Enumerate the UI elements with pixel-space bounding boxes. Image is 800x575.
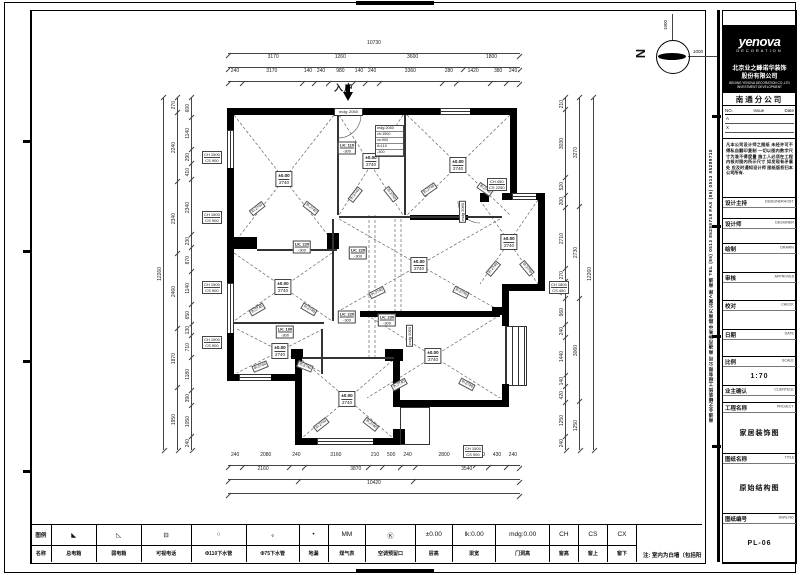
entry-arrow-head: [343, 92, 353, 101]
legend-symbol: •: [300, 525, 328, 546]
legend-symbol: Ⓚ: [366, 525, 414, 546]
field-value: [723, 229, 796, 243]
beam-drop: -300: [351, 254, 365, 259]
legend-note: 注: 室内为白墙（包括阳台）建筑面积:120m²: [637, 525, 702, 562]
beam-drop: -300: [295, 248, 309, 253]
window: [440, 108, 472, 115]
titleblock-field: 审核 APPROVED: [723, 273, 796, 302]
dim-segment: 1260: [318, 54, 362, 68]
dim-segment: 10420: [228, 480, 520, 494]
dim-row-overall: 10420: [228, 480, 520, 494]
dim-segment: 240: [506, 68, 520, 82]
dim-segment: 12260: [150, 98, 164, 450]
legend-name: Φ75下水管: [247, 546, 299, 562]
field-value: 原始结构图: [723, 464, 796, 514]
dim-col-inner: 2103030520200271027046096024014401404201…: [552, 98, 566, 450]
field-label-en: DWG.NO: [779, 515, 794, 519]
wall: [227, 333, 234, 381]
dim-segment: 3870: [298, 466, 413, 480]
door-height-tag: mdg 2060: [406, 325, 413, 347]
room-level-label: ±0.00 2740: [271, 343, 288, 359]
partition: [332, 219, 334, 321]
dim-row-mid: 216038703540: [228, 466, 520, 480]
dim-segment: 1180: [178, 358, 192, 391]
titleblock-field: 设计主持 DESIGNERHOST: [723, 198, 796, 219]
room-ceiling-height: 2740: [341, 400, 352, 406]
room-level-label: ±0.00 2740: [500, 234, 517, 250]
window-sill: CS 900: [204, 343, 220, 348]
interior-wall: [227, 237, 257, 249]
field-value: [723, 254, 796, 272]
dim-col-overall: 12260: [580, 98, 594, 450]
dim-segment: 290: [178, 150, 192, 164]
dim-segment: 230: [178, 235, 192, 248]
dim-segment: 3270: [566, 98, 580, 207]
window: [239, 374, 273, 381]
dim-segment: 2340: [178, 180, 192, 235]
dim-segment: 420: [552, 387, 566, 403]
legend-bar: 图例 名称 ◣ 总电箱 ◺ 弱电箱 ⊟ 可视电话 ○ Φ110下水管 ∘ Φ75…: [31, 524, 702, 562]
legend-symbol: mdg:0.00: [496, 525, 548, 546]
beam-drop: -300: [380, 321, 394, 326]
beam-width-tag: LK: 220 -300: [293, 241, 311, 254]
field-label-en: CHECK: [782, 302, 794, 306]
dim-col-mid: 27022402340246018701950: [164, 98, 178, 450]
dim-segment: 1250: [566, 402, 580, 450]
rev-no-label: NO.: [725, 107, 733, 114]
legend-item: ⊟ 可视电话: [142, 525, 192, 562]
field-label-cn: 图纸名称: [725, 455, 747, 463]
revision-row: X: [725, 124, 794, 133]
window: [317, 438, 375, 445]
wall: [470, 108, 517, 115]
field-label-cn: 校对: [725, 302, 736, 310]
wall: [502, 291, 509, 326]
room-ceiling-height: 2740: [277, 288, 288, 294]
room-level-label: ±0.00 2740: [274, 279, 291, 295]
revision-header: NO. Issue Date: [725, 107, 794, 115]
legend-name: 窗高: [550, 546, 578, 562]
room-ceiling-height: 2740: [427, 357, 438, 363]
dim-segment: 430: [488, 452, 505, 466]
dim-segment: 1420: [456, 68, 490, 82]
beam-drop: -300: [340, 318, 354, 323]
beam-drop: -300: [340, 149, 354, 154]
wall: [510, 115, 517, 200]
field-label-cn: 工程名称: [725, 404, 747, 412]
legend-name: 层高: [416, 546, 452, 562]
dim-segment: 520: [552, 178, 566, 196]
legend-name: 梁宽: [453, 546, 496, 562]
field-label-cn: 设计主持: [725, 199, 747, 207]
field-label-en: DESIGNER: [775, 220, 794, 224]
floor-plan: 入户 mdg: 2060 ±0.00 2740 ±0.00 2740 ±0.00…: [197, 93, 597, 465]
wall: [536, 193, 545, 200]
dim-segment: 240: [289, 452, 303, 466]
dim-row-overall: 10730: [228, 40, 520, 54]
titleblock-field: 日期 DATE: [723, 330, 796, 357]
revision-table: NO. Issue Date AX: [723, 106, 796, 139]
dim-segment: 3360: [379, 68, 442, 82]
rev-issue-label: Issue: [753, 107, 764, 114]
dim-segment: 1250: [552, 403, 566, 437]
legend-item: MM 煤气表: [329, 525, 367, 562]
room-level-label: ±0.00 2740: [275, 171, 292, 187]
window-sill: CS 900: [204, 158, 220, 163]
company-logo: yenova DECORATION: [723, 26, 796, 64]
dim-segment: 2340: [164, 182, 178, 254]
dim-segment: 1870: [164, 329, 178, 389]
door-height-tag: mdg 2060: [459, 201, 466, 223]
window-tag: CH 1500 CS 900: [202, 336, 222, 349]
dims-top: 10730 3170126036001800 24031701402409801…: [228, 40, 520, 82]
dim-segment: 410: [178, 164, 192, 180]
dim-segment: 140: [302, 68, 314, 82]
partition: [337, 115, 339, 215]
room-level-label: ±0.00 2740: [338, 391, 355, 407]
dim-segment: 240: [552, 325, 566, 338]
legend-header: 图例 名称: [31, 525, 52, 562]
dim-segment: 2080: [242, 452, 289, 466]
branch-name: 南通分公司: [723, 91, 796, 107]
wall: [395, 400, 509, 407]
legend-name: 可视电话: [142, 546, 191, 562]
legend-item: ◺ 弱电箱: [97, 525, 142, 562]
legend-symbol: CS: [579, 525, 607, 546]
drawing-sheet: 入户 mdg: 2060 ±0.00 2740 ±0.00 2740 ±0.00…: [0, 0, 800, 575]
dim-segment: 1440: [552, 338, 566, 376]
column: [492, 307, 502, 315]
dim-segment: 2240: [164, 113, 178, 182]
beam-width-tag: LK: 220 -300: [338, 311, 356, 324]
legend-name: 空调预留口: [366, 546, 414, 562]
dim-segment: 650: [178, 305, 192, 326]
dim-segment: 240: [228, 68, 242, 82]
print-mark-top: [356, 1, 434, 5]
legend-name: 弱电箱: [97, 546, 141, 562]
legend-name: 总电箱: [52, 546, 96, 562]
wall: [361, 108, 440, 115]
field-label-en: PROJECT: [777, 404, 794, 408]
dims-right: 2103030520200271027046096024014401404201…: [552, 98, 594, 450]
legend-item: lk:0.00 梁宽: [453, 525, 497, 562]
legend-name: Φ110下水管: [192, 546, 246, 562]
company-name-en2: INVESTMENT DEVELOPMENT: [727, 85, 793, 89]
room-ceiling-height: 2740: [503, 243, 514, 249]
door-height-value: mdg 2060: [460, 203, 465, 221]
field-label-en: CLIENTELE: [775, 387, 794, 391]
legend-item: ○ Φ110下水管: [192, 525, 247, 562]
dim-segment: 240: [365, 68, 379, 82]
legend-name: 门洞高: [496, 546, 548, 562]
dim-segment: 3540: [413, 466, 520, 480]
legend-item: Ⓚ 空调预留口: [366, 525, 415, 562]
legend-item: CX 窗下: [608, 525, 637, 562]
north-circle: [656, 40, 690, 74]
dim-col-mid: 3270273030601250: [566, 98, 580, 450]
field-label-en: APPROVED: [774, 274, 794, 278]
company-name-cn2: 股份有限公司: [723, 73, 796, 81]
room-ceiling-height: 2740: [365, 162, 376, 168]
titleblock-top-gap: [723, 11, 796, 26]
window: [227, 130, 234, 170]
dim-segment: 390: [178, 391, 192, 407]
wall: [271, 374, 302, 381]
titleblock-field: 图纸编号 DWG.NO PL-06: [723, 514, 796, 563]
rev-date-label: Date: [784, 107, 794, 114]
field-label-cn: 图纸编号: [725, 515, 747, 523]
field-value: PL-06: [723, 524, 796, 562]
beam-width-tag: LK: 190 -300: [276, 326, 294, 339]
beam-drop: -300: [278, 333, 292, 338]
field-label-cn: 绘制: [725, 245, 736, 253]
dim-segment: 240: [552, 437, 566, 450]
titleblock-field: 绘制 DRAWN: [723, 244, 796, 273]
dim-segment: 980: [328, 68, 353, 82]
dim-segment: 1950: [164, 388, 178, 450]
field-label-en: DESIGNERHOST: [766, 199, 794, 203]
wall: [538, 200, 545, 291]
window-tag: CH 450 CS 2250: [487, 178, 507, 191]
entry-note-box: mdg:2060ch:1500cs:900lk:110-300: [375, 125, 404, 157]
dim-segment: 240: [400, 452, 414, 466]
titleblock-field: 校对 CHECK: [723, 301, 796, 330]
legend-item: ±0.00 层高: [416, 525, 453, 562]
window: [512, 193, 538, 200]
legend-item: ∘ Φ75下水管: [247, 525, 300, 562]
print-mark-bottom: [356, 569, 434, 573]
legend-symbol: MM: [329, 525, 366, 546]
dim-segment: 1140: [178, 118, 192, 150]
room-ceiling-height: 2740: [274, 352, 285, 358]
legend-item: • 地漏: [300, 525, 329, 562]
field-value: [723, 340, 796, 356]
dim-col-overall: 12260: [150, 98, 164, 450]
dim-segment: 10730: [228, 40, 520, 54]
dim-segment: 280: [442, 68, 456, 82]
titleblock-field: 比例 SCALE 1:70: [723, 357, 796, 386]
dim-row-inner: 240317014024098014024033602801420380240: [228, 68, 520, 82]
room-ceiling-height: 2740: [413, 266, 424, 272]
dim-segment: 2160: [228, 466, 298, 480]
dim-segment: 600: [178, 98, 192, 118]
window-tag: CH 1500 CS 900: [463, 445, 483, 458]
field-label-cn: 日期: [725, 331, 736, 339]
column: [385, 349, 403, 361]
fold-tick: [23, 250, 32, 253]
room-level-label: ±0.00 2740: [410, 257, 427, 273]
field-label-cn: 业主确认: [725, 387, 747, 395]
dim-segment: 380: [490, 68, 506, 82]
legend-symbol: ∘: [247, 525, 299, 546]
dim-segment: 3600: [362, 54, 463, 68]
field-label-cn: 设计师: [725, 220, 742, 228]
field-value: [723, 208, 796, 218]
titleblock-field: 业主确认 CLIENTELE: [723, 386, 796, 403]
revision-row: A: [725, 115, 794, 124]
dim-segment: 2710: [552, 208, 566, 269]
logo-wordmark: yenova: [739, 35, 781, 48]
dim-segment: 140: [552, 376, 566, 387]
company-name-block: 北京业之峰诺华装饰 股份有限公司 BEIJING YENOVA DECORATI…: [723, 64, 796, 91]
titleblock-divider-bar: [717, 10, 720, 562]
dim-segment: 240: [314, 68, 328, 82]
legend-header-bottom: 名称: [31, 546, 51, 562]
dim-segment: 1140: [178, 272, 192, 304]
partition: [404, 115, 406, 215]
field-label-en: SCALE: [782, 358, 794, 362]
partition: [321, 329, 323, 374]
room-ceiling-height: 2740: [452, 166, 463, 172]
legend-symbol: CX: [608, 525, 636, 546]
beam-width-tag: LK: 230 -300: [378, 314, 396, 327]
company-contact-text: 南通业之峰装饰工程有限公司 南通市钟秀中路南方公寓A座 南通 TEL (86) …: [708, 149, 714, 422]
beam-width-tag: LK: 110 -300: [338, 142, 356, 155]
legend-symbol: lk:0.00: [453, 525, 496, 546]
legend-symbol: ◺: [97, 525, 141, 546]
dim-segment: 12260: [580, 98, 594, 450]
dim-segment: 210: [552, 98, 566, 110]
legend-name: 煤气表: [329, 546, 366, 562]
dim-segment: 3170: [242, 68, 302, 82]
dim-segment: 200: [552, 196, 566, 208]
legend-item: CH 窗高: [550, 525, 579, 562]
north-dim-right: 1000: [693, 49, 703, 54]
dims-bottom: 240208024031602105002402800280430240 216…: [228, 452, 520, 494]
window-tag: CH 1800 CS 450: [549, 281, 569, 294]
legend-item: CS 窗上: [579, 525, 608, 562]
field-label-cn: 比例: [725, 358, 736, 366]
window-tag: CH 1500 CS 900: [202, 151, 222, 164]
beam-width-tag: LK: 220 -300: [349, 247, 367, 260]
field-value: [723, 396, 796, 402]
dim-segment: 1800: [463, 54, 520, 68]
dim-segment: 3030: [552, 110, 566, 177]
dim-segment: 1050: [178, 406, 192, 437]
company-name-cn: 北京业之峰诺华装饰: [723, 65, 796, 73]
title-block: yenova DECORATION 北京业之峰诺华装饰 股份有限公司 BEIJI…: [722, 10, 797, 564]
dim-segment: 210: [368, 452, 382, 466]
legend-name: 窗下: [608, 546, 636, 562]
dim-segment: 240: [228, 452, 242, 466]
fold-tick: [23, 140, 32, 143]
north-letter: N: [633, 49, 648, 58]
legend-symbol: ⊟: [142, 525, 191, 546]
field-value: 1:70: [723, 367, 796, 385]
disclaimer-note: 凡本公司设计师之图纸 未经许可不得私自翻印复制 一切以图内数字尺寸为准不得度量 …: [723, 139, 796, 198]
dim-segment: 500: [382, 452, 401, 466]
door-height-value: mdg 2060: [407, 327, 412, 345]
fold-tick: [23, 470, 32, 473]
logo-subtitle: DECORATION: [736, 48, 782, 54]
north-leader-vertical: [672, 14, 673, 40]
dim-segment: 240: [506, 452, 520, 466]
partition: [302, 357, 394, 359]
legend-name: 地漏: [300, 546, 328, 562]
room-level-label: ±0.00 2740: [424, 348, 441, 364]
dim-segment: 2460: [164, 254, 178, 329]
dim-segment: 140: [353, 68, 365, 82]
wall: [502, 284, 545, 291]
north-lens: [658, 53, 686, 60]
titleblock-field: 工程名称 PROJECT 家居装饰图: [723, 403, 796, 454]
legend-header-top: 图例: [31, 525, 51, 546]
dim-row-mid: 3170126036001800: [228, 54, 520, 68]
fold-tick: [23, 360, 32, 363]
legend-item: ◣ 总电箱: [52, 525, 97, 562]
partition: [339, 216, 502, 218]
window-tag: CH 1500 CS 900: [202, 281, 222, 294]
bay-window: [505, 326, 527, 386]
wall: [295, 355, 302, 445]
field-value: [723, 283, 796, 301]
wall: [227, 108, 338, 115]
north-dim-up: 1000: [663, 20, 668, 30]
company-contact-strip: 南通业之峰装饰工程有限公司 南通市钟秀中路南方公寓A座 南通 TEL (86) …: [704, 10, 717, 562]
window-sill: CS 450: [551, 288, 567, 293]
entry-door-height-tag: mdg: 2060: [334, 108, 363, 116]
dim-segment: 3170: [228, 54, 318, 68]
field-value: 家居装饰图: [723, 413, 796, 453]
titleblock-field: 图纸名称 TITLE 原始结构图: [723, 454, 796, 515]
dims-left: 12260 27022402340246018701950 6001140290…: [150, 98, 192, 450]
balcony: [400, 407, 430, 445]
note-line: -300: [376, 150, 403, 156]
field-label-en: TITLE: [784, 455, 794, 459]
window: [227, 283, 234, 335]
window-sill: CS 900: [204, 218, 220, 223]
field-value: [723, 311, 796, 329]
partition: [234, 322, 324, 324]
window-sill: CS 2250: [489, 185, 505, 190]
dim-segment: 130: [178, 325, 192, 336]
legend-name: 窗上: [579, 546, 607, 562]
legend-symbol: ○: [192, 525, 246, 546]
legend-symbol: ◣: [52, 525, 96, 546]
dim-segment: 3060: [566, 299, 580, 401]
window-tag: CH 1500 CS 900: [202, 211, 222, 224]
dim-segment: 240: [178, 437, 192, 450]
wall: [227, 168, 234, 283]
field-label-cn: 审核: [725, 274, 736, 282]
dim-segment: 3160: [304, 452, 369, 466]
room-ceiling-height: 2740: [278, 180, 289, 186]
field-label-en: DRAWN: [781, 245, 794, 249]
wall: [227, 108, 234, 130]
window-sill: CS 900: [465, 452, 481, 457]
titleblock-field: 设计师 DESIGNER: [723, 219, 796, 244]
legend-symbol: CH: [550, 525, 578, 546]
wall: [502, 193, 512, 200]
legend-item: mdg:0.00 门洞高: [496, 525, 549, 562]
dim-segment: 870: [178, 248, 192, 273]
legend-symbol: ±0.00: [416, 525, 452, 546]
room-level-label: ±0.00 2740: [449, 157, 466, 173]
window-sill: CS 900: [204, 288, 220, 293]
field-label-en: DATE: [785, 331, 794, 335]
dim-col-inner: 6001140290410234023087011406501307101180…: [178, 98, 192, 450]
dim-segment: 270: [164, 98, 178, 113]
dim-segment: 710: [178, 336, 192, 358]
dim-segment: 960: [552, 299, 566, 325]
